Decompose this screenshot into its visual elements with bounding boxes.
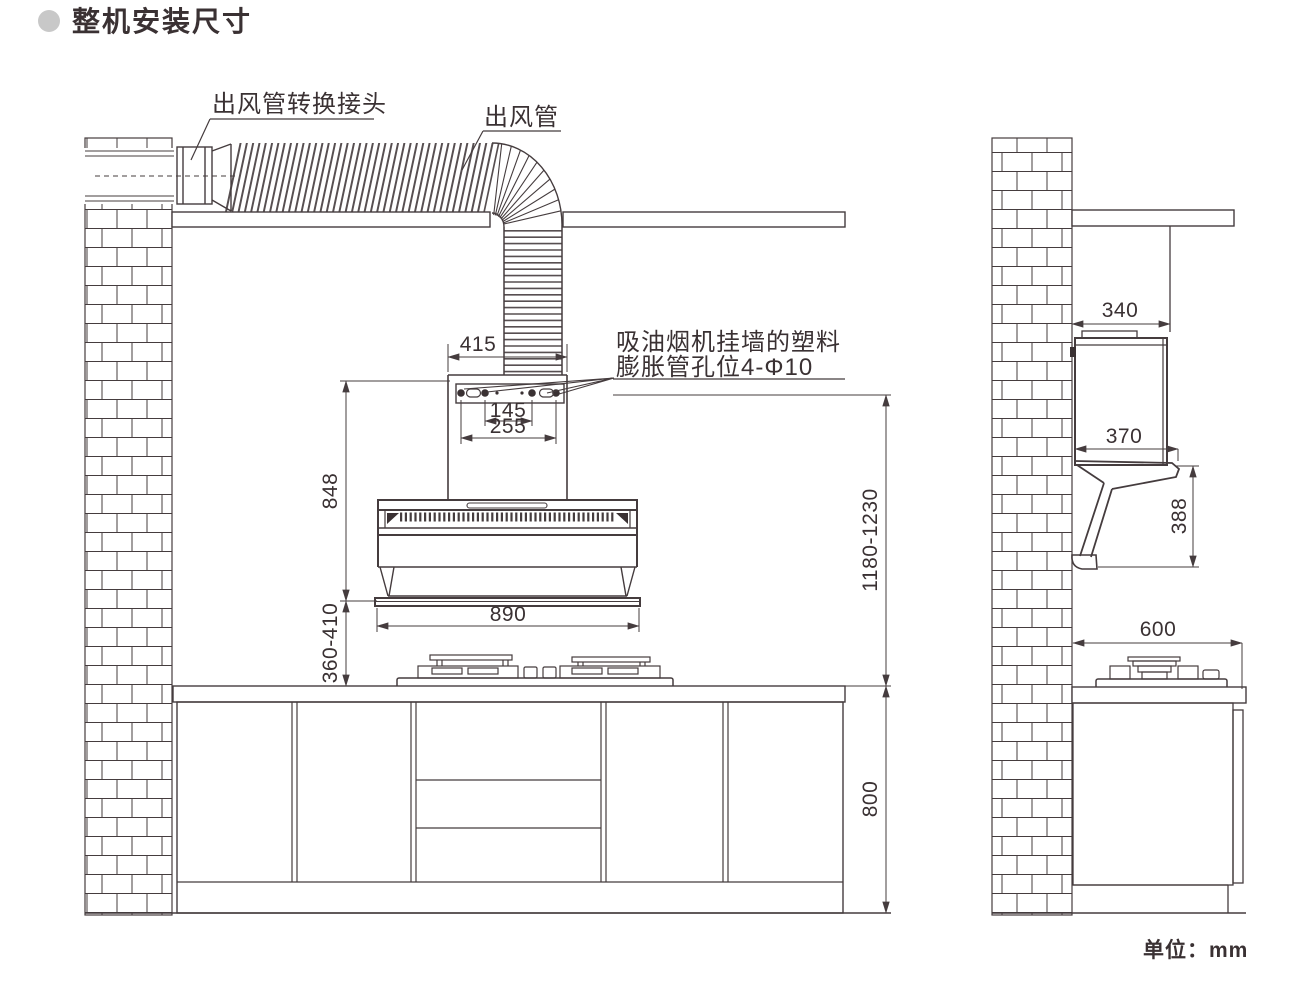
hood-top-slot xyxy=(467,503,547,508)
dim-hood-to-countertop: 360-410 xyxy=(319,601,346,686)
right-brick-wall xyxy=(992,138,1072,915)
hood-side-collar xyxy=(1082,331,1137,338)
dim-370: 370 xyxy=(1106,425,1143,448)
duct-adapter xyxy=(177,144,231,211)
cabinet-side-kick xyxy=(1073,885,1228,913)
dim-388: 388 xyxy=(1168,498,1191,535)
dim-600: 600 xyxy=(1140,618,1177,641)
countertop-front xyxy=(173,686,845,702)
dim-255: 255 xyxy=(490,415,527,438)
dim-holes-to-countertop: 1180-1230 xyxy=(613,395,891,686)
hood-side-foot xyxy=(1072,555,1097,569)
side-view: 340 370 388 600 xyxy=(992,138,1246,915)
dim-340: 340 xyxy=(1102,299,1139,322)
dim-hood-front-height: 388 xyxy=(1098,466,1199,567)
hood-side xyxy=(1070,331,1179,569)
dim-1180-1230: 1180-1230 xyxy=(859,488,882,591)
dim-countertop-height: 800 xyxy=(845,686,891,913)
front-view: 出风管转换接头 出风管 吸油烟机挂墙的塑料 膨胀管孔位4-Φ10 415 xyxy=(84,91,891,915)
hood-side-canopy xyxy=(1075,461,1179,557)
wall-holes-label-line2: 膨胀管孔位4-Φ10 xyxy=(616,354,813,381)
unit-note: 单位：mm xyxy=(1143,938,1248,962)
cooktop-front xyxy=(397,655,673,689)
dim-800: 800 xyxy=(859,781,882,818)
duct-label: 出风管 xyxy=(484,104,559,131)
dim-hood-height: 848 xyxy=(319,381,450,601)
page-header: 整机安装尺寸 xyxy=(38,6,252,37)
cabinet-front xyxy=(177,702,843,913)
page-title: 整机安装尺寸 xyxy=(72,6,252,37)
dim-415: 415 xyxy=(460,333,497,356)
hood-wall-bracket xyxy=(1070,347,1076,357)
dim-848: 848 xyxy=(319,473,342,510)
dim-hood-width: 890 xyxy=(377,603,639,632)
duct-adapter-label: 出风管转换接头 xyxy=(212,91,387,118)
flex-duct-vertical xyxy=(504,225,562,375)
installation-diagram-page: 整机安装尺寸 xyxy=(0,0,1305,993)
countertop-side xyxy=(1072,687,1246,703)
hood-front xyxy=(375,500,640,606)
left-brick-wall xyxy=(84,138,174,915)
installation-diagram: 整机安装尺寸 xyxy=(0,0,1305,993)
cabinet-drawer-lines xyxy=(416,780,601,828)
wall-holes-label-line1: 吸油烟机挂墙的塑料 xyxy=(616,329,841,356)
cabinet-side-door xyxy=(1233,710,1243,883)
dim-890: 890 xyxy=(490,603,527,626)
cabinet-side xyxy=(1073,703,1243,913)
dim-wall-to-duct: 340 xyxy=(1072,299,1170,324)
cooktop-side xyxy=(1096,657,1227,689)
title-bullet-icon xyxy=(38,10,60,32)
soffit-side xyxy=(1072,210,1234,226)
dim-360-410: 360-410 xyxy=(319,603,342,684)
duct-elbow xyxy=(492,143,562,227)
